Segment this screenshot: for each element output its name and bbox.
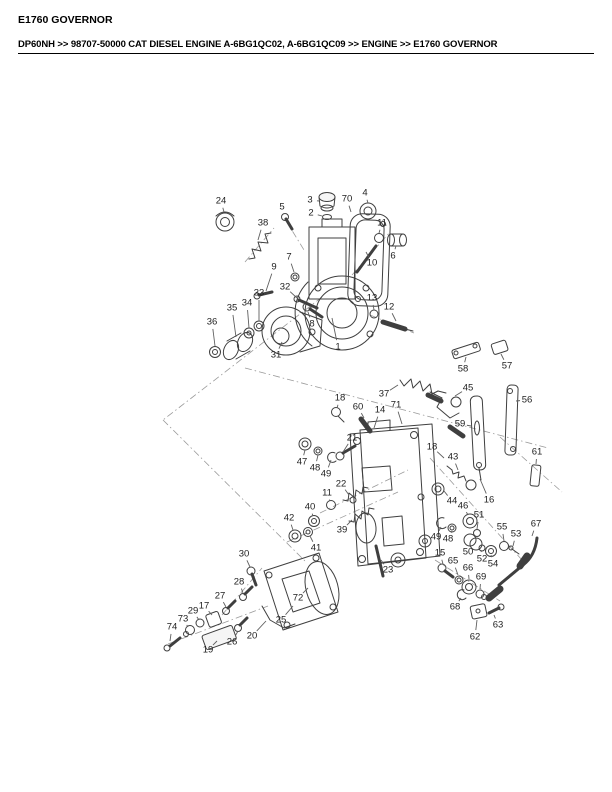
part-callout-35[interactable]: 35: [225, 302, 240, 314]
part-callout-55[interactable]: 55: [495, 521, 510, 533]
part-callout-22[interactable]: 22: [334, 478, 349, 490]
part-callout-4[interactable]: 4: [360, 187, 369, 199]
part-callout-3[interactable]: 3: [305, 194, 314, 206]
part-callout-9[interactable]: 9: [269, 261, 278, 273]
part-callout-26[interactable]: 26: [225, 636, 240, 648]
leader-line-65: [455, 568, 458, 575]
part-callout-40[interactable]: 40: [303, 501, 318, 513]
leader-line-70: [349, 206, 351, 212]
part-callout-69[interactable]: 69: [474, 571, 489, 583]
leader-line-24: [223, 208, 224, 212]
part-callout-14[interactable]: 14: [373, 404, 388, 416]
part-callout-31[interactable]: 31: [269, 349, 284, 361]
leader-line-67: [532, 531, 534, 536]
part-callout-34[interactable]: 34: [240, 297, 255, 309]
leader-line-9: [266, 274, 272, 291]
leader-line-48: [317, 455, 318, 461]
part-callout-27[interactable]: 27: [213, 590, 228, 602]
leader-line-15: [442, 560, 443, 564]
part-callout-1[interactable]: 1: [333, 341, 342, 353]
part-callout-11[interactable]: 11: [375, 217, 389, 229]
leader-line-31: [279, 342, 282, 349]
part-callout-21[interactable]: 21: [345, 432, 360, 444]
part-callout-49[interactable]: 49: [319, 468, 334, 480]
part-callout-18[interactable]: 18: [333, 392, 348, 404]
leader-line-21: [343, 444, 348, 452]
part-callout-49[interactable]: 49: [429, 531, 444, 543]
part-callout-25[interactable]: 25: [274, 614, 289, 626]
leader-line-26: [235, 631, 238, 636]
part-callout-6[interactable]: 6: [388, 250, 397, 262]
leader-line-36: [213, 329, 215, 346]
leader-line-74: [170, 634, 171, 641]
leader-line-27: [223, 602, 226, 607]
leader-line-46: [466, 512, 468, 515]
leader-line-30: [247, 560, 250, 567]
part-callout-24[interactable]: 24: [214, 195, 229, 207]
part-callout-32[interactable]: 32: [278, 281, 293, 293]
leader-line-47: [304, 450, 305, 455]
part-callout-36[interactable]: 36: [205, 316, 220, 328]
leader-line-38: [258, 230, 261, 240]
leader-line-13: [373, 305, 374, 310]
part-callout-45[interactable]: 45: [461, 382, 476, 394]
leader-line-8: [308, 312, 310, 317]
leader-line-7: [291, 264, 294, 272]
part-callout-70[interactable]: 70: [340, 193, 355, 205]
leader-line-10: [366, 252, 369, 257]
part-callout-43[interactable]: 43: [446, 451, 461, 463]
part-callout-68[interactable]: 68: [448, 601, 463, 613]
part-callout-61[interactable]: 61: [530, 446, 545, 458]
leader-line-34: [248, 310, 249, 328]
leader-line-2: [318, 215, 322, 216]
leader-line-28: [241, 589, 243, 593]
part-callout-20[interactable]: 20: [245, 630, 260, 642]
part-callout-74[interactable]: 74: [165, 621, 180, 633]
part-callout-16[interactable]: 16: [482, 494, 497, 506]
part-callout-62[interactable]: 62: [468, 631, 483, 643]
part-callout-8[interactable]: 8: [307, 318, 316, 330]
part-callout-42[interactable]: 42: [282, 512, 297, 524]
leader-line-1: [332, 318, 337, 340]
leader-line-22: [345, 490, 349, 495]
part-callout-50[interactable]: 50: [461, 546, 476, 558]
part-callout-18[interactable]: 18: [425, 441, 440, 453]
part-callout-39[interactable]: 39: [335, 524, 350, 536]
exploded-diagram: 1234567891011111213141516171818192021222…: [0, 0, 612, 792]
part-callout-5[interactable]: 5: [277, 201, 286, 213]
leader-line-60: [361, 413, 364, 418]
leader-line-71: [398, 412, 402, 424]
catalog-page: E1760 GOVERNOR DP60NH >> 98707-50000 CAT…: [0, 0, 612, 792]
part-callout-41[interactable]: 41: [309, 542, 324, 554]
leader-line-6: [395, 246, 396, 249]
part-callout-71[interactable]: 71: [389, 399, 404, 411]
leader-line-11: [329, 500, 330, 501]
leader-line-49: [328, 460, 331, 467]
part-callout-53[interactable]: 53: [509, 528, 524, 540]
leader-line-35: [233, 315, 236, 337]
part-callout-12[interactable]: 12: [382, 301, 397, 313]
leader-line-16: [480, 479, 486, 494]
part-callout-23[interactable]: 23: [381, 564, 396, 576]
part-callout-67[interactable]: 67: [529, 518, 544, 530]
leader-line-42: [291, 525, 293, 530]
part-callout-63[interactable]: 63: [491, 619, 506, 631]
part-callout-57[interactable]: 57: [500, 360, 515, 372]
part-callout-19[interactable]: 19: [201, 644, 216, 656]
leader-line-11: [379, 230, 380, 233]
part-callout-37[interactable]: 37: [377, 388, 392, 400]
part-callout-28[interactable]: 28: [232, 576, 247, 588]
part-callout-58[interactable]: 58: [456, 363, 471, 375]
part-callout-51[interactable]: 51: [472, 509, 487, 521]
leader-line-55: [503, 534, 504, 541]
part-callout-11[interactable]: 11: [320, 487, 334, 499]
leader-line-29: [197, 617, 199, 620]
part-callout-13[interactable]: 13: [365, 292, 380, 304]
leader-line-4: [367, 200, 368, 203]
leader-line-63: [494, 615, 495, 619]
leader-line-40: [312, 514, 313, 516]
leader-line-49: [439, 527, 441, 531]
part-callout-46[interactable]: 46: [456, 500, 471, 512]
leader-line-73: [187, 625, 188, 627]
leader-line-62: [476, 620, 477, 630]
part-callout-10[interactable]: 10: [365, 257, 380, 269]
part-callout-60[interactable]: 60: [351, 401, 366, 413]
leader-line-53: [513, 541, 514, 546]
leader-line-41: [310, 536, 313, 542]
part-callout-30[interactable]: 30: [237, 548, 252, 560]
leader-line-43: [456, 464, 458, 470]
part-callout-65[interactable]: 65: [446, 555, 461, 567]
leader-line-14: [374, 417, 378, 428]
leader-line-59: [467, 425, 471, 426]
part-callout-2[interactable]: 2: [306, 207, 315, 219]
part-callout-7[interactable]: 7: [284, 251, 293, 263]
part-callout-59[interactable]: 59: [453, 418, 468, 430]
leader-line-12: [392, 313, 396, 321]
leader-line-57: [501, 354, 504, 360]
part-callout-54[interactable]: 54: [486, 558, 501, 570]
leader-line-18: [337, 405, 338, 408]
leader-line-17: [209, 611, 212, 615]
leader-line-58: [465, 357, 466, 362]
part-callout-72[interactable]: 72: [291, 592, 306, 604]
part-callout-56[interactable]: 56: [520, 394, 535, 406]
part-callout-38[interactable]: 38: [256, 217, 271, 229]
leader-line-51: [477, 522, 478, 529]
